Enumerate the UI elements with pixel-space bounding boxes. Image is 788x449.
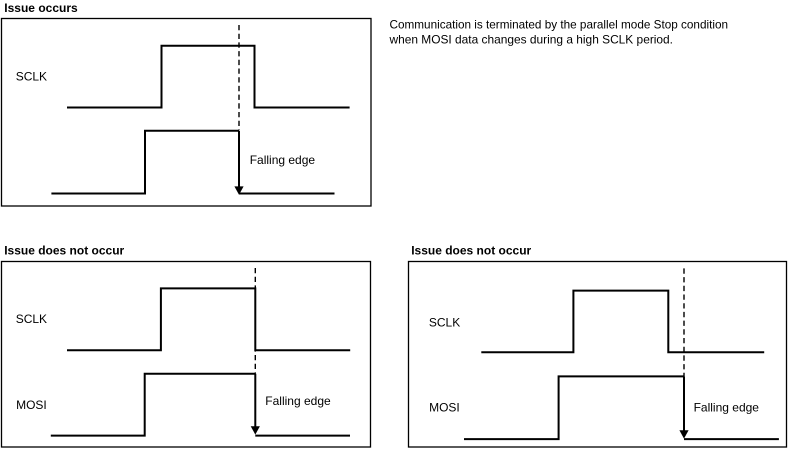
svg-text:Issue does not occur: Issue does not occur — [4, 244, 124, 258]
svg-text:MOSI: MOSI — [16, 398, 47, 412]
svg-text:Issue does not occur: Issue does not occur — [411, 244, 531, 258]
svg-text:Communication is terminated by: Communication is terminated by the paral… — [390, 17, 729, 31]
svg-text:Falling edge: Falling edge — [694, 401, 760, 415]
svg-text:Issue occurs: Issue occurs — [4, 1, 78, 15]
svg-text:SCLK: SCLK — [429, 315, 460, 329]
svg-text:Falling edge: Falling edge — [250, 153, 316, 167]
svg-text:Falling edge: Falling edge — [265, 394, 331, 408]
svg-text:SCLK: SCLK — [16, 312, 47, 326]
svg-text:SCLK: SCLK — [16, 69, 47, 83]
svg-text:MOSI: MOSI — [429, 401, 460, 415]
svg-text:when MOSI data changes during: when MOSI data changes during a high SCL… — [389, 32, 673, 46]
